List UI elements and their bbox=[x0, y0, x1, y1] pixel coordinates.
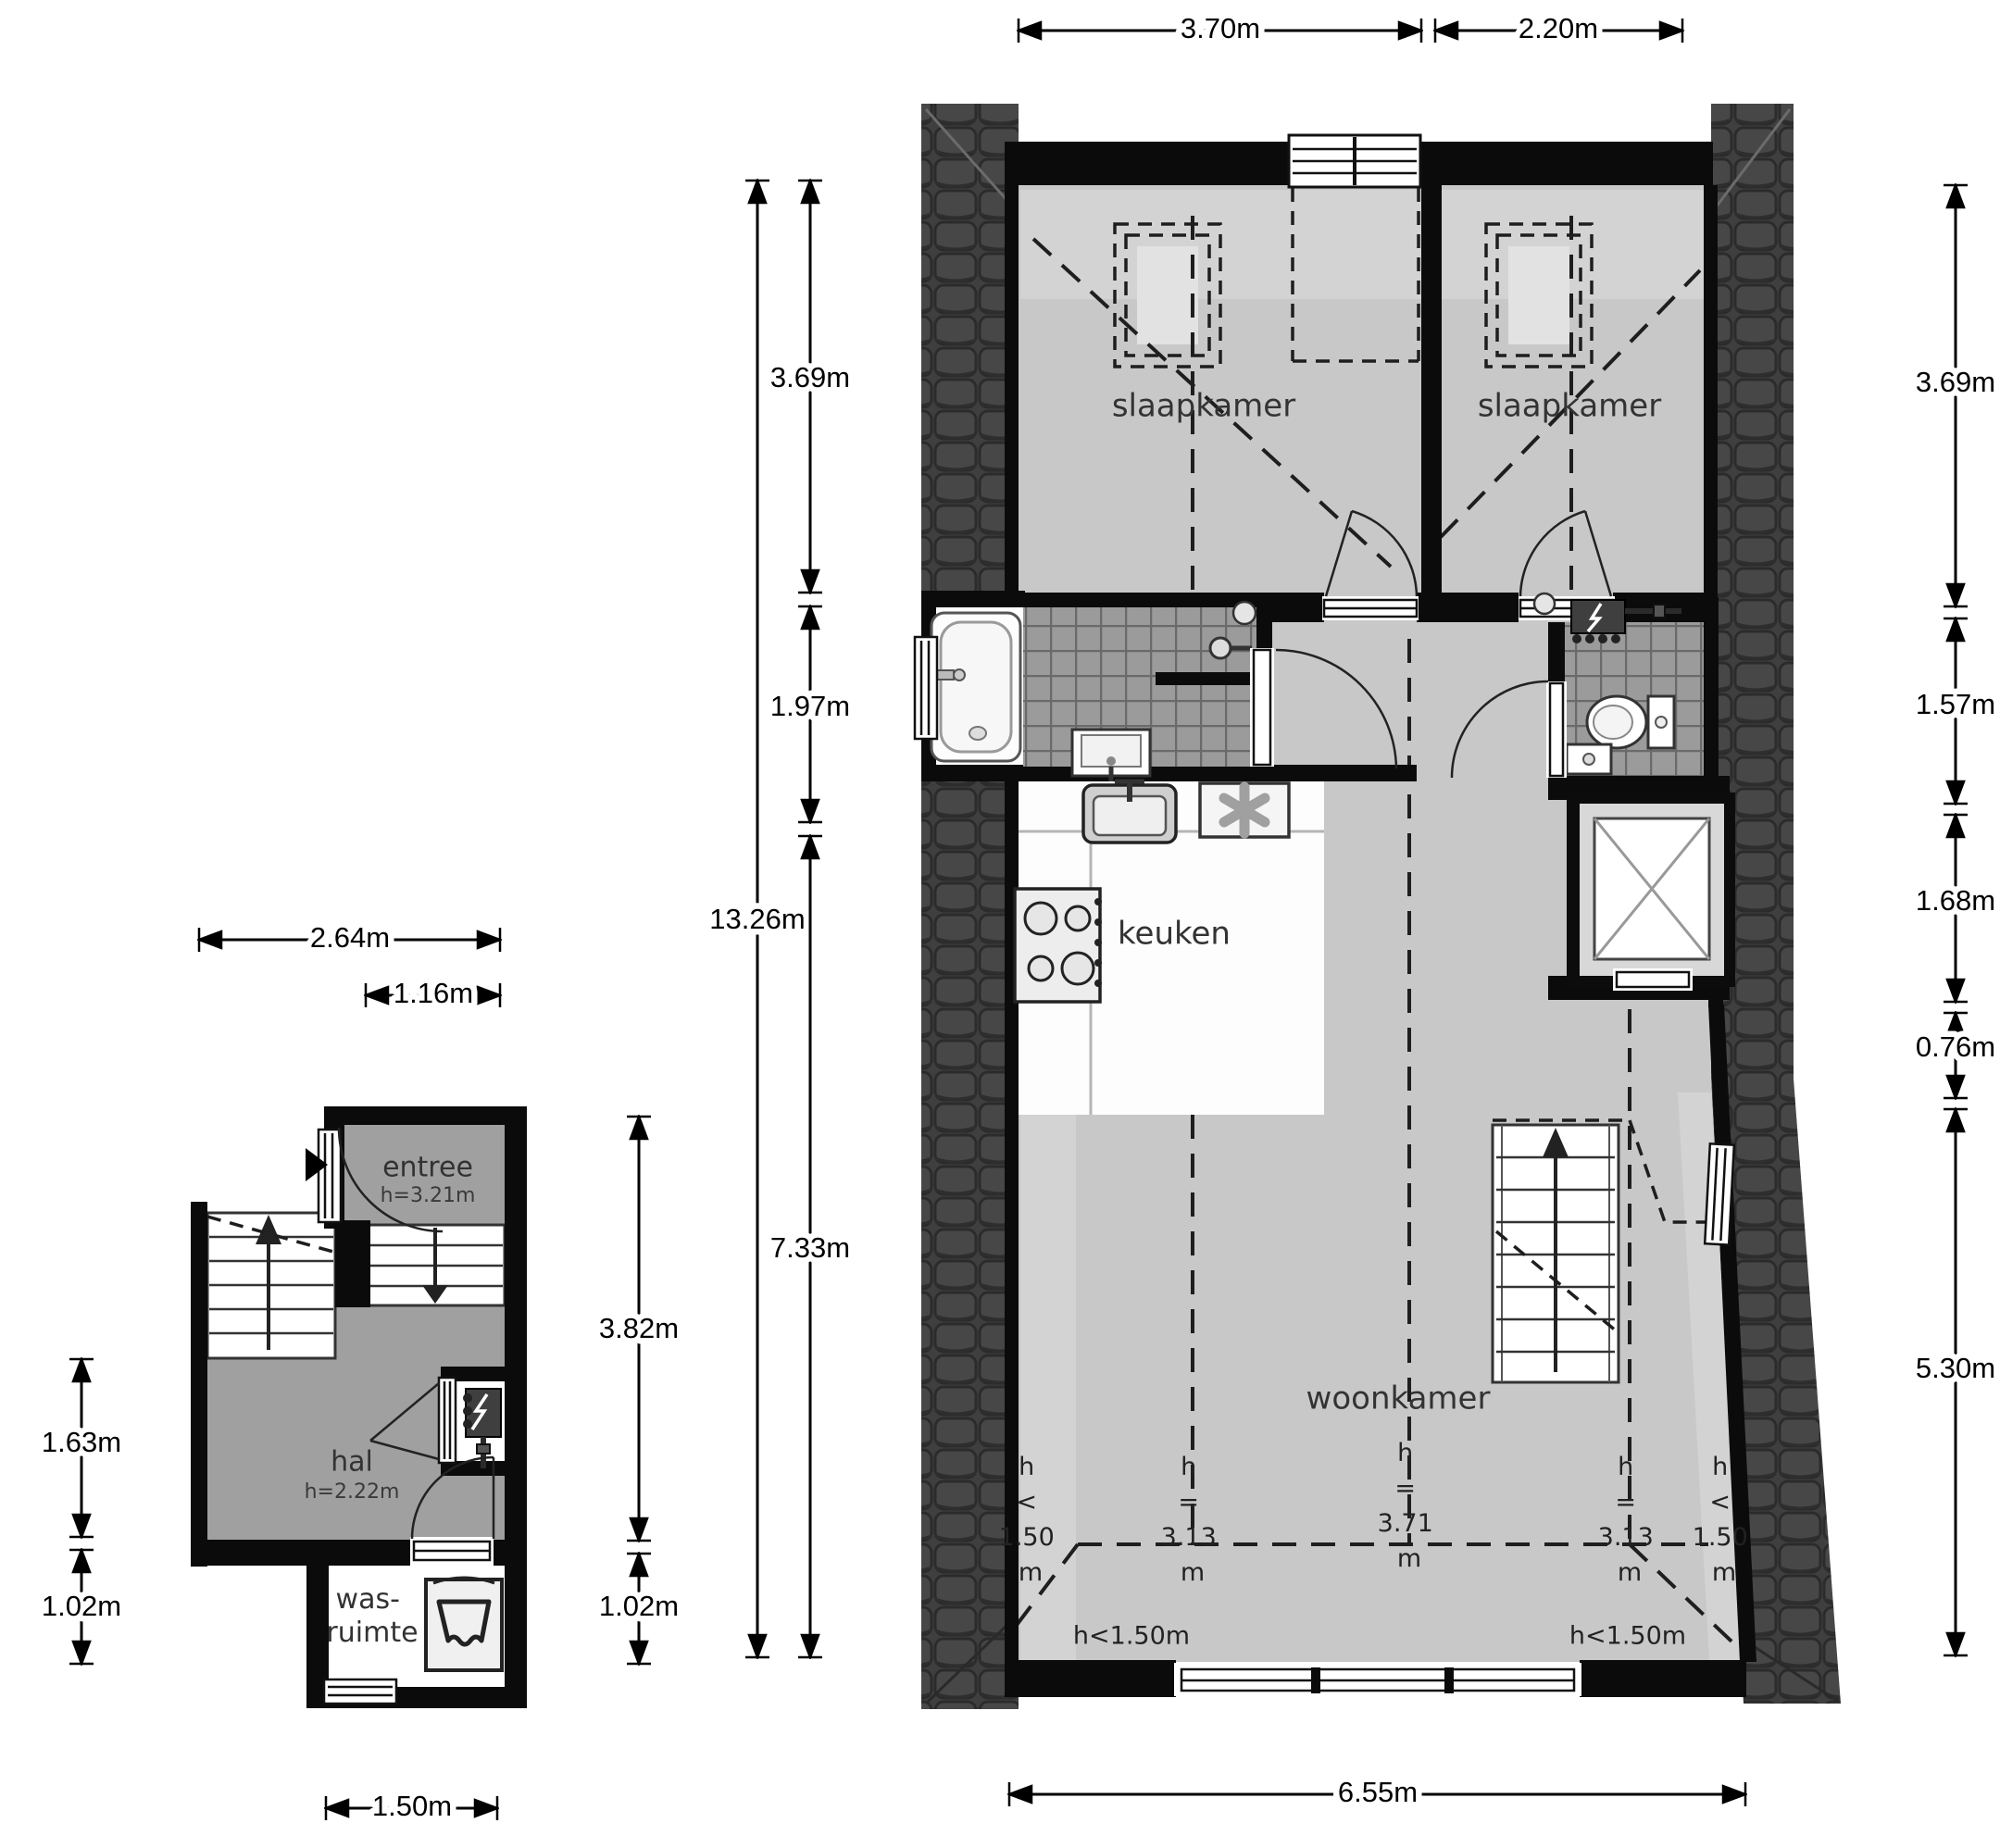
entree-label: entree bbox=[382, 1152, 473, 1184]
dim-label: 0.76m bbox=[1916, 1030, 1995, 1063]
upper-floor-plan: slaapkamer slaapkamer keuken woonkamer h… bbox=[915, 104, 1841, 1709]
refrigerator bbox=[1200, 783, 1289, 837]
dim-label: 1.68m bbox=[1916, 884, 1995, 917]
dim-label: 1.63m bbox=[42, 1426, 121, 1458]
entree-height-label: h=3.21m bbox=[381, 1184, 476, 1207]
wall bbox=[191, 1540, 415, 1566]
dim-label: 13.26m bbox=[709, 903, 805, 935]
roof-slope-shading bbox=[1020, 190, 1704, 299]
toilet bbox=[1587, 696, 1674, 748]
washbasin bbox=[1072, 730, 1150, 781]
wall bbox=[1704, 185, 1718, 597]
entree-window bbox=[319, 1130, 341, 1222]
dim-label: 1.02m bbox=[599, 1590, 679, 1622]
kitchen-sink bbox=[1083, 780, 1176, 843]
wall bbox=[1005, 142, 1289, 185]
dim-label: 1.50m bbox=[372, 1790, 452, 1822]
livingroom-label: woonkamer bbox=[1306, 1380, 1491, 1417]
laundry-label: was- ruimte bbox=[326, 1583, 418, 1649]
wall bbox=[921, 765, 1417, 781]
wall-bedroom-partition bbox=[1421, 185, 1442, 593]
wall bbox=[1005, 1660, 1176, 1697]
bedroom-left-label: slaapkamer bbox=[1112, 388, 1295, 425]
stairs-down bbox=[367, 1225, 505, 1305]
dim-label: 1.02m bbox=[42, 1590, 121, 1622]
wall bbox=[492, 1540, 527, 1566]
dim-label: 1.97m bbox=[770, 690, 850, 722]
stairs-up-ground bbox=[207, 1213, 335, 1358]
dim-label: 5.30m bbox=[1916, 1352, 1995, 1384]
washing-machine-icon bbox=[426, 1578, 502, 1670]
bedroom-right-label: slaapkamer bbox=[1478, 388, 1661, 425]
wall bbox=[191, 1224, 207, 1567]
wall bbox=[1417, 593, 1519, 622]
stove bbox=[1015, 889, 1102, 1002]
dim-label: 3.70m bbox=[1181, 12, 1260, 44]
livingroom-window bbox=[1174, 1663, 1581, 1696]
height-mark-corner: h<1.50m bbox=[1073, 1622, 1190, 1651]
dim-label: 6.55m bbox=[1338, 1776, 1418, 1808]
height-mark-corner: h<1.50m bbox=[1569, 1622, 1686, 1651]
dim-label: 3.82m bbox=[599, 1312, 679, 1344]
dim-label: 1.16m bbox=[394, 977, 473, 1009]
wall-stub bbox=[1156, 672, 1257, 685]
floorplan-page: slaapkamer slaapkamer keuken woonkamer h… bbox=[0, 0, 2000, 1848]
bathroom-window bbox=[915, 637, 937, 739]
toilet-washbasin bbox=[1567, 744, 1611, 774]
dim-label: 3.69m bbox=[1916, 366, 1995, 398]
hal-label: hal bbox=[331, 1446, 373, 1479]
wall bbox=[335, 1220, 370, 1307]
elevator bbox=[1574, 798, 1730, 991]
ceiling-spot-icon bbox=[1233, 602, 1256, 624]
dormer-window bbox=[1705, 1143, 1734, 1244]
wall bbox=[191, 1202, 207, 1226]
wall bbox=[1420, 142, 1713, 185]
wall bbox=[1548, 622, 1565, 681]
wall bbox=[921, 591, 1025, 607]
dim-label: 7.33m bbox=[770, 1231, 850, 1264]
roof-left bbox=[921, 104, 1019, 1709]
ceiling-spot-icon bbox=[1534, 593, 1555, 614]
wall bbox=[1005, 185, 1019, 597]
floorplan-canvas: slaapkamer slaapkamer keuken woonkamer h… bbox=[0, 0, 2000, 1848]
ground-floor-plan: entree h=3.21m hal h=2.22m was- ruimte bbox=[191, 1106, 527, 1708]
wall bbox=[324, 1106, 527, 1125]
dim-label: 2.20m bbox=[1519, 12, 1598, 44]
stairs-up bbox=[1493, 1125, 1619, 1382]
wall bbox=[1704, 597, 1719, 776]
laundry-window bbox=[324, 1679, 396, 1704]
wall bbox=[505, 1106, 527, 1708]
dim-label: 2.64m bbox=[310, 921, 390, 954]
wall bbox=[1580, 1660, 1746, 1697]
bathtub bbox=[931, 613, 1020, 761]
bedroom-top-window bbox=[1289, 135, 1420, 187]
kitchen-label: keuken bbox=[1118, 916, 1231, 953]
dim-label: 3.69m bbox=[770, 361, 850, 393]
dim-label: 1.57m bbox=[1916, 688, 1995, 720]
hal-height-label: h=2.22m bbox=[305, 1480, 400, 1504]
